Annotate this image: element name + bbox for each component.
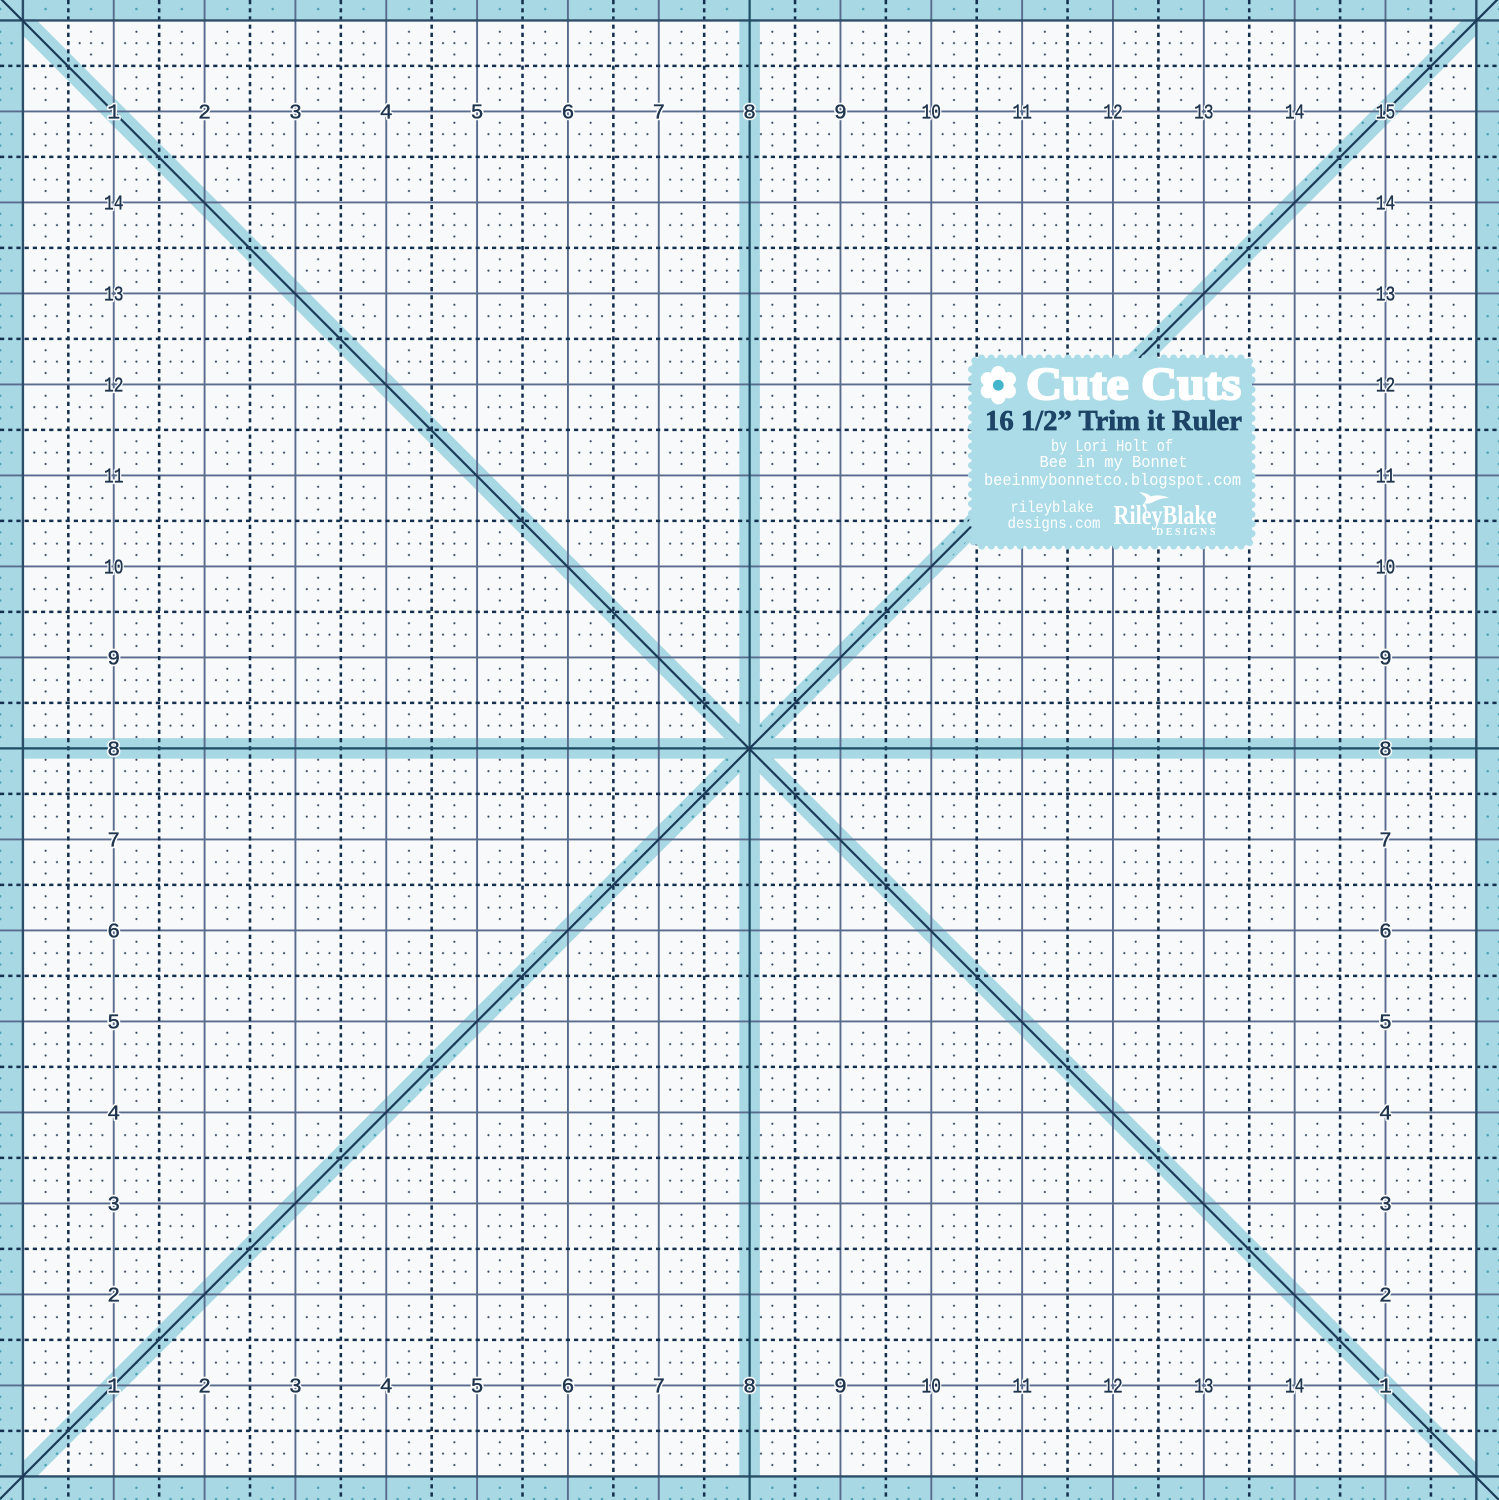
svg-text:13: 13 xyxy=(1194,101,1214,125)
svg-text:5: 5 xyxy=(1379,1011,1392,1035)
svg-text:12: 12 xyxy=(1376,374,1396,398)
svg-text:5: 5 xyxy=(471,101,484,125)
svg-text:5: 5 xyxy=(107,1011,120,1035)
svg-text:14: 14 xyxy=(1285,101,1305,125)
svg-text:1: 1 xyxy=(107,1375,120,1399)
svg-text:14: 14 xyxy=(1285,1375,1305,1399)
svg-text:7: 7 xyxy=(107,829,120,853)
svg-text:2: 2 xyxy=(198,1375,211,1399)
svg-text:14: 14 xyxy=(104,192,124,216)
svg-text:designs.com: designs.com xyxy=(1008,515,1101,533)
svg-text:6: 6 xyxy=(561,101,574,125)
svg-text:3: 3 xyxy=(289,1375,302,1399)
svg-text:6: 6 xyxy=(107,920,120,944)
svg-text:5: 5 xyxy=(471,1375,484,1399)
svg-text:6: 6 xyxy=(561,1375,574,1399)
svg-text:7: 7 xyxy=(652,101,665,125)
svg-text:3: 3 xyxy=(289,101,302,125)
svg-text:RileyBlake: RileyBlake xyxy=(1114,500,1217,530)
svg-text:9: 9 xyxy=(1379,647,1392,671)
svg-text:11: 11 xyxy=(1012,1375,1032,1399)
svg-text:11: 11 xyxy=(104,465,124,489)
svg-text:beeinmybonnetco.blogspot.com: beeinmybonnetco.blogspot.com xyxy=(984,471,1241,490)
svg-text:8: 8 xyxy=(1379,738,1392,762)
svg-text:8: 8 xyxy=(107,738,120,762)
svg-text:16 1/2” Trim it Ruler: 16 1/2” Trim it Ruler xyxy=(985,405,1242,437)
svg-text:9: 9 xyxy=(834,101,847,125)
svg-text:12: 12 xyxy=(104,374,124,398)
svg-text:15: 15 xyxy=(1376,101,1396,125)
svg-text:3: 3 xyxy=(107,1193,120,1217)
svg-text:4: 4 xyxy=(1379,1102,1392,1126)
svg-text:13: 13 xyxy=(1376,283,1396,307)
svg-text:4: 4 xyxy=(107,1102,120,1126)
svg-text:3: 3 xyxy=(1379,1193,1392,1217)
svg-text:13: 13 xyxy=(1194,1375,1214,1399)
svg-text:10: 10 xyxy=(922,101,942,125)
svg-text:2: 2 xyxy=(1379,1284,1392,1308)
svg-text:11: 11 xyxy=(1376,465,1396,489)
svg-text:13: 13 xyxy=(104,283,124,307)
svg-text:1: 1 xyxy=(1379,1375,1392,1399)
svg-text:9: 9 xyxy=(834,1375,847,1399)
svg-text:8: 8 xyxy=(743,101,756,125)
svg-text:14: 14 xyxy=(1376,192,1396,216)
svg-text:10: 10 xyxy=(1376,556,1396,580)
svg-text:12: 12 xyxy=(1103,1375,1123,1399)
svg-text:11: 11 xyxy=(1012,101,1032,125)
svg-text:8: 8 xyxy=(743,1375,756,1399)
svg-text:7: 7 xyxy=(652,1375,665,1399)
svg-text:9: 9 xyxy=(107,647,120,671)
svg-text:2: 2 xyxy=(198,101,211,125)
svg-text:DESIGNS: DESIGNS xyxy=(1156,527,1218,538)
svg-text:Cute Cuts: Cute Cuts xyxy=(1026,358,1241,409)
svg-text:2: 2 xyxy=(107,1284,120,1308)
svg-text:4: 4 xyxy=(380,101,393,125)
svg-text:12: 12 xyxy=(1103,101,1123,125)
svg-text:10: 10 xyxy=(104,556,124,580)
svg-text:10: 10 xyxy=(922,1375,942,1399)
svg-text:7: 7 xyxy=(1379,829,1392,853)
svg-text:1: 1 xyxy=(107,101,120,125)
svg-text:4: 4 xyxy=(380,1375,393,1399)
svg-text:6: 6 xyxy=(1379,920,1392,944)
